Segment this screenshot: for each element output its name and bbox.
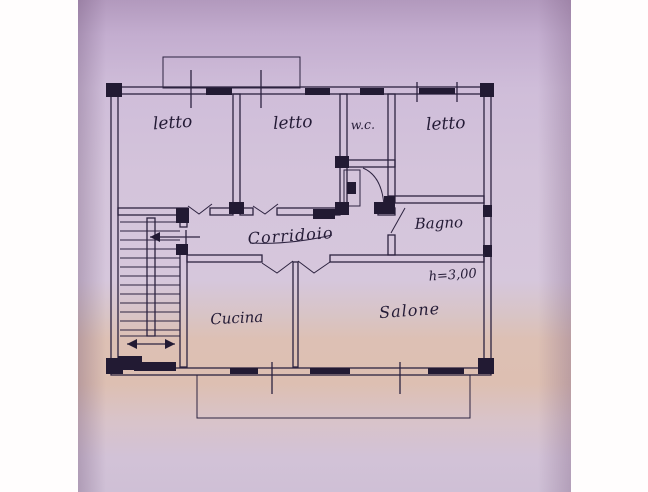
room-label-letto-3: letto: [426, 113, 466, 135]
room-label-bagno: Bagno: [413, 213, 463, 233]
staircase: [120, 218, 180, 336]
room-label-wc: w.c.: [351, 117, 376, 133]
door-swings: [188, 168, 405, 273]
stair-direction-arrows: [127, 230, 200, 349]
top-balcony: [163, 57, 300, 88]
bottom-balcony: [197, 375, 470, 418]
room-label-corridoio: Corridoio: [247, 223, 334, 248]
room-label-cucina: Cucina: [210, 308, 264, 329]
room-label-letto-1: letto: [152, 112, 193, 135]
scanned-floor-plan-page: letto letto w.c. letto Corridoio Bagno h…: [0, 0, 648, 492]
room-label-salone: Salone: [379, 299, 441, 322]
room-label-letto-2: letto: [273, 112, 313, 134]
room-labels: letto letto w.c. letto Corridoio Bagno h…: [152, 112, 477, 329]
floor-plan-drawing: letto letto w.c. letto Corridoio Bagno h…: [0, 0, 648, 492]
ceiling-height-annotation: h=3,00: [428, 266, 477, 284]
